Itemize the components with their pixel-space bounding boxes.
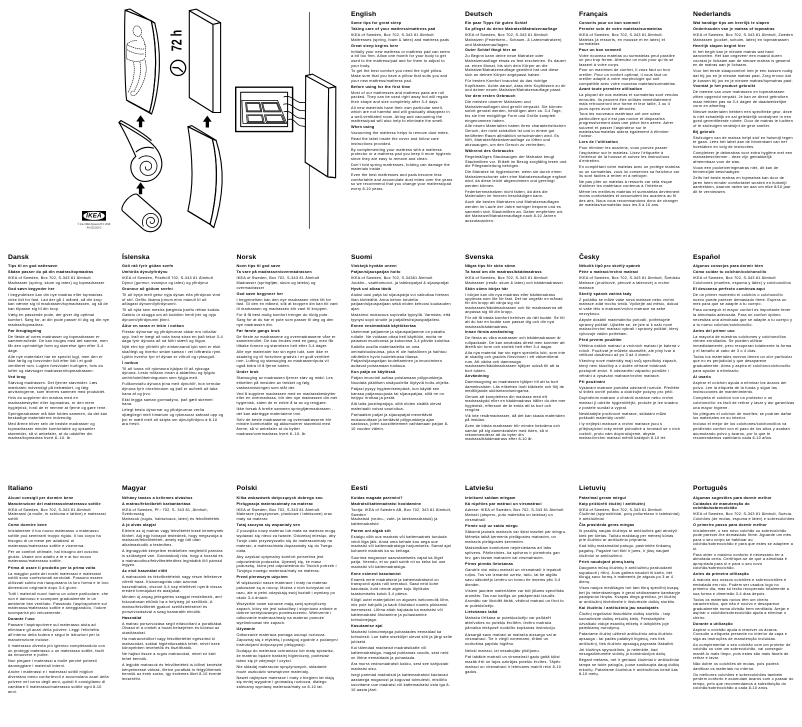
svg-text:72 h: 72 h bbox=[170, 30, 186, 52]
svg-text:© Inter IKEA Systems B.V. 2019: © Inter IKEA Systems B.V. 2019 bbox=[78, 223, 111, 226]
svg-text:AA-2213310-2: AA-2213310-2 bbox=[87, 227, 103, 230]
svg-text:IKEA: IKEA bbox=[86, 212, 102, 219]
